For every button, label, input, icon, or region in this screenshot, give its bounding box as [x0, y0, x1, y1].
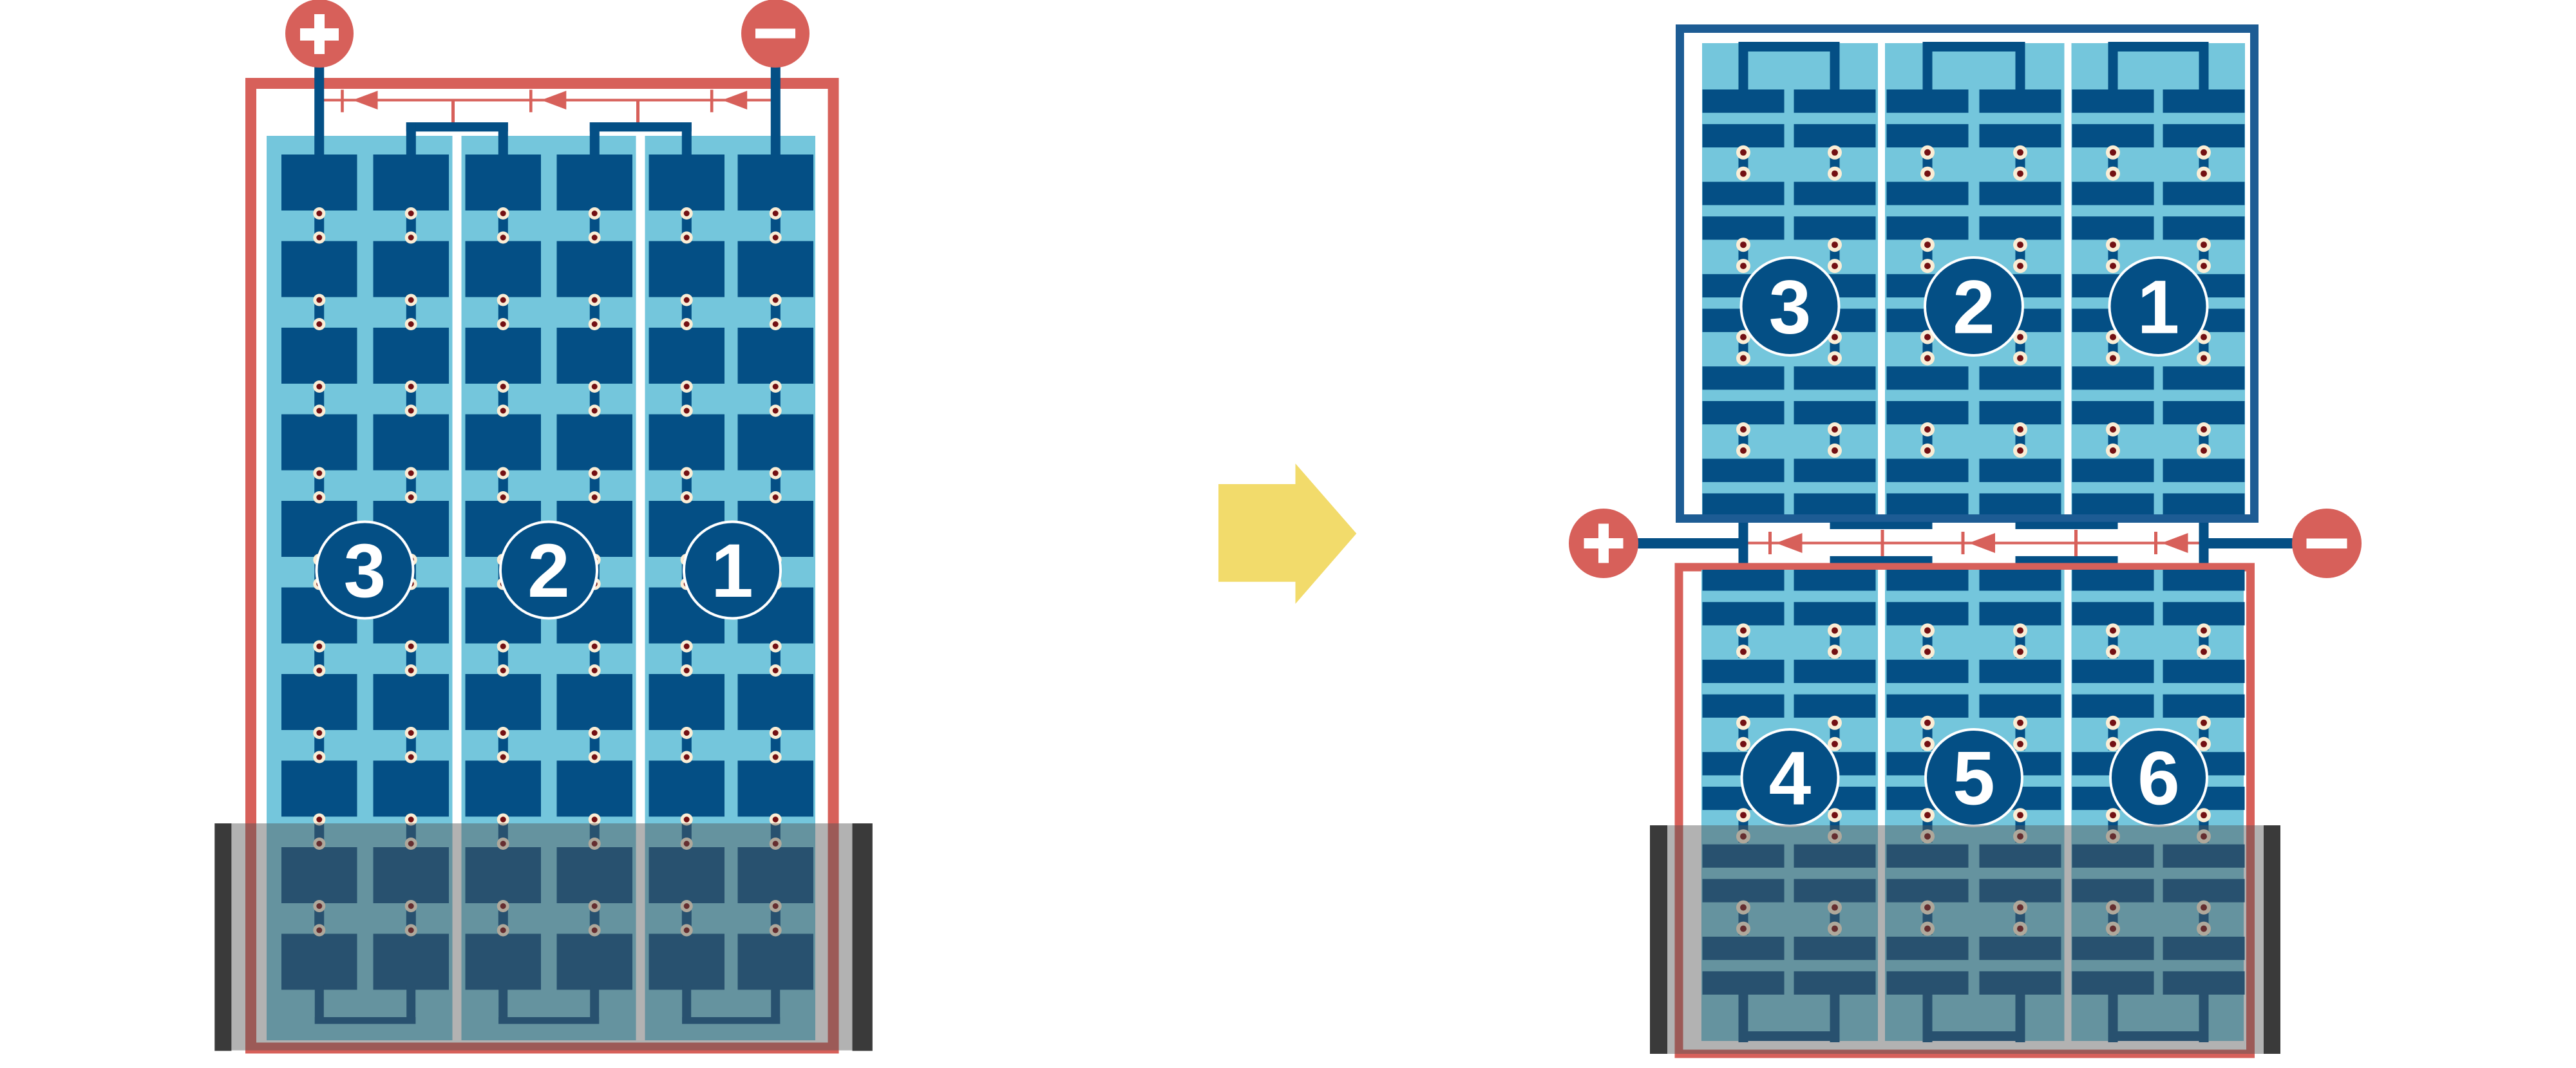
svg-text:1: 1: [2137, 265, 2180, 350]
svg-text:4: 4: [1769, 736, 1812, 821]
svg-text:6: 6: [2137, 736, 2180, 821]
svg-text:1: 1: [711, 529, 753, 614]
svg-text:3: 3: [344, 529, 386, 614]
svg-text:3: 3: [1769, 265, 1812, 350]
svg-text:2: 2: [1953, 265, 1995, 350]
svg-text:5: 5: [1953, 736, 1995, 821]
svg-text:2: 2: [527, 529, 570, 614]
